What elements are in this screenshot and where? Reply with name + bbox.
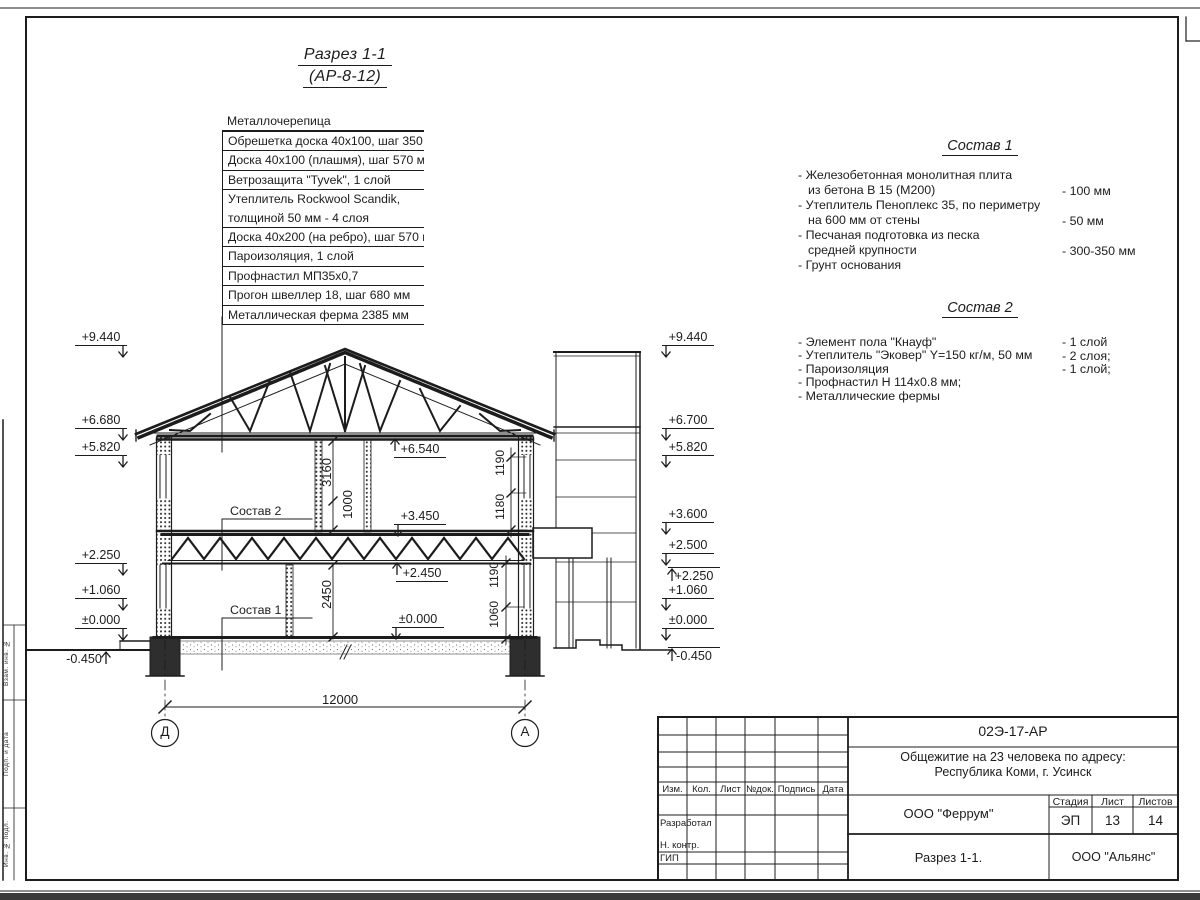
role-nkontr: Н. контр. <box>660 840 699 851</box>
composition-item: - Профнастил Н 114х0.8 мм; <box>798 376 1178 389</box>
floor-truss <box>157 531 533 564</box>
role-razrabotal: Разработал <box>660 818 712 829</box>
col-header-kol: Кол. <box>687 784 716 795</box>
composition-1-title: Состав 1 <box>900 138 1060 156</box>
col-header-data: Дата <box>818 784 848 795</box>
elevation-mark: +5.820 <box>662 440 714 456</box>
titleblock-org: ООО "Феррум" <box>848 806 1049 821</box>
composition-1-list: - Железобетонная монолитная плитаиз бето… <box>798 168 1178 273</box>
sostav2-ref-label: Состав 2 <box>230 504 281 518</box>
elevation-mark: +5.820 <box>75 440 127 456</box>
elevation-mark: +2.450 <box>396 566 448 582</box>
elevation-mark: ±0.000 <box>392 612 444 628</box>
walls <box>153 437 537 637</box>
elevation-mark: +1.060 <box>75 583 127 599</box>
roof-layers-table: Обрешетка доска 40х100, шаг 350 ммДоска … <box>222 130 424 325</box>
elevation-mark: +6.700 <box>662 413 714 429</box>
composition-item: - Пароизоляция- 1 слой; <box>798 363 1178 376</box>
axis-bubble-label: Д <box>152 724 178 739</box>
side-label-podp: Подп. и дата <box>3 702 14 806</box>
sostav1-ref-label: Состав 1 <box>230 603 281 617</box>
roof <box>136 349 554 445</box>
col-header-podpis: Подпись <box>775 784 818 795</box>
dimension-label: 3160 <box>320 458 334 487</box>
elevation-mark: +1.060 <box>662 583 714 599</box>
roof-layer-row: Профнастил МП35х0,7 <box>223 266 424 285</box>
sheet-value: 13 <box>1092 813 1133 828</box>
dimension-label: 1190 <box>487 562 501 588</box>
entrance-canopy <box>533 528 592 558</box>
dimension-label: 2450 <box>320 580 334 609</box>
dimension-label: 1000 <box>341 490 355 519</box>
roof-layer-row: Утеплитель Rockwool Scandik, <box>223 189 424 208</box>
side-label-inv: Инв. № подл. <box>3 810 14 878</box>
elevation-mark: +9.440 <box>662 330 714 346</box>
drawing-sheet: Разрез 1-1 (АР-8-12) Металлочерепица Обр… <box>0 0 1200 900</box>
drawing-title: Разрез 1-1 (АР-8-12) <box>270 46 420 88</box>
roof-layer-row: Пароизоляция, 1 слой <box>223 246 424 265</box>
elevation-mark: +3.450 <box>394 509 446 525</box>
axis-bubble-label: А <box>512 724 538 739</box>
dimension-label: 12000 <box>322 692 358 707</box>
sheets-value: 14 <box>1133 813 1178 828</box>
drawing-title-line1: Разрез 1-1 <box>298 46 392 66</box>
elevation-mark: -0.450 <box>668 647 720 663</box>
sheets-label: Листов <box>1133 796 1178 808</box>
composition-item: - Металлические фермы <box>798 390 1178 403</box>
composition-2-title: Состав 2 <box>900 300 1060 318</box>
roof-layers-callout: Металлочерепица Обрешетка доска 40х100, … <box>222 112 424 325</box>
drawing-title-line2: (АР-8-12) <box>303 68 387 88</box>
composition-item: - Песчаная подготовка из пескасредней кр… <box>798 228 1178 258</box>
col-header-izm: Изм. <box>658 784 687 795</box>
roof-layer-row: Ветрозащита "Tyvek", 1 слой <box>223 170 424 189</box>
elevation-mark: +3.600 <box>662 507 714 523</box>
elevation-mark: +6.540 <box>394 442 446 458</box>
roof-layer-row: Прогон швеллер 18, шаг 680 мм <box>223 285 424 304</box>
roof-layer-row: Доска 40х200 (на ребро), шаг 570 мм <box>223 227 424 246</box>
dimension-label: 1060 <box>487 601 501 628</box>
dimension-label: 1180 <box>493 494 507 520</box>
elevation-mark: +6.680 <box>75 413 127 429</box>
drawing-name: Разрез 1-1. <box>848 850 1049 865</box>
elevation-mark: +9.440 <box>75 330 127 346</box>
composition-item: - Утеплитель Пеноплекс 35, по периметрун… <box>798 198 1178 228</box>
titleblock-org2: ООО "Альянс" <box>1049 850 1178 864</box>
composition-2-list: - Элемент пола "Кнауф"- 1 слой- Утеплите… <box>798 336 1178 403</box>
role-gip: ГИП <box>660 853 679 864</box>
annex-elevation <box>533 352 672 650</box>
titleblock-code: 02Э-17-АР <box>848 723 1178 739</box>
sheet-label: Лист <box>1092 796 1133 808</box>
stage-label: Стадия <box>1049 796 1092 808</box>
col-header-list: Лист <box>716 784 745 795</box>
stage-value: ЭП <box>1049 813 1092 828</box>
elevation-mark: +2.250 <box>668 567 720 583</box>
elevation-mark: ±0.000 <box>662 613 714 629</box>
roof-layer-row: Обрешетка доска 40х100, шаг 350 мм <box>223 131 424 150</box>
elevation-mark: +2.250 <box>75 548 127 564</box>
elevation-mark: +2.500 <box>662 538 714 554</box>
side-label-vzam: Взам. инв. № <box>3 627 14 698</box>
roof-layer-row: Металлическая ферма 2385 мм <box>223 305 424 324</box>
elevation-mark: ±0.000 <box>75 613 127 629</box>
col-header-ndok: №док. <box>745 784 775 795</box>
composition-item: - Элемент пола "Кнауф"- 1 слой <box>798 336 1178 349</box>
composition-item: - Железобетонная монолитная плитаиз бето… <box>798 168 1178 198</box>
roof-layer-row: Доска 40х100 (плашмя), шаг 570 мм <box>223 150 424 169</box>
composition-item: - Грунт основания <box>798 258 1178 273</box>
roof-layer-row: толщиной 50 мм - 4 слоя <box>223 209 424 227</box>
roof-layers-header: Металлочерепица <box>222 112 424 130</box>
elevation-mark: -0.450 <box>58 650 110 666</box>
titleblock-project-line2: Республика Коми, г. Усинск <box>848 765 1178 779</box>
composition-item: - Утеплитель "Эковер" Y=150 кг/м, 50 мм-… <box>798 349 1178 362</box>
dimension-label: 1190 <box>493 450 507 476</box>
titleblock-project-line1: Общежитие на 23 человека по адресу: <box>848 750 1178 764</box>
entrance-steps <box>554 640 672 650</box>
